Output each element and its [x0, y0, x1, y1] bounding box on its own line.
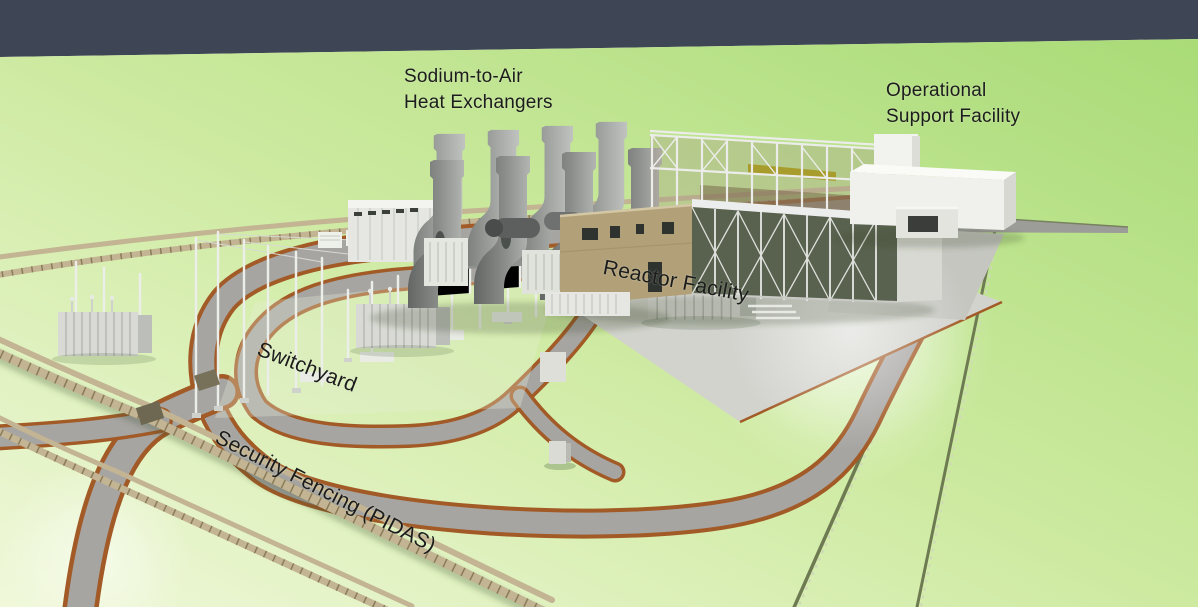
- label-support-facility: Operational Support Facility: [886, 78, 1020, 130]
- label-heat-exchangers: Sodium-to-Air Heat Exchangers: [404, 64, 553, 116]
- site-rendering: Sodium-to-Air Heat Exchangers Operationa…: [0, 0, 1198, 607]
- bay-door: [908, 216, 938, 232]
- louver-units: [545, 292, 630, 316]
